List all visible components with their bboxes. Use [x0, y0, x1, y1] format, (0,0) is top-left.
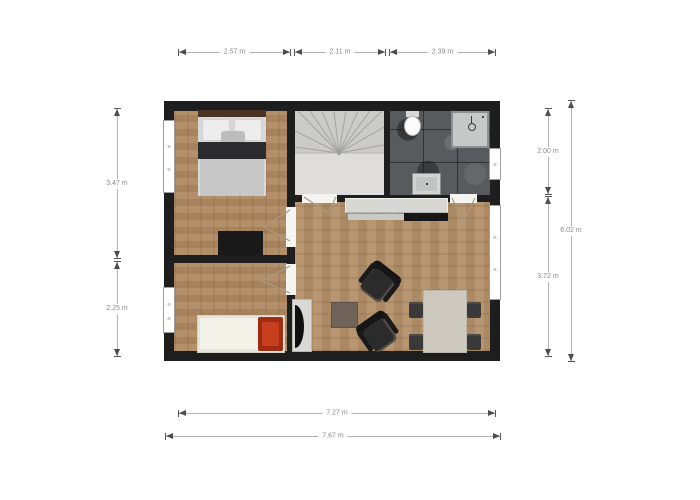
door-opening-bathroom [450, 194, 477, 203]
dining-table [423, 290, 467, 353]
kitchen-counter-dark-module [404, 213, 448, 221]
coffee-table [331, 302, 358, 328]
window-tick [168, 303, 171, 306]
dimension-label: 7.67 m [318, 432, 347, 441]
shower-drain [482, 116, 484, 118]
dining-chair [467, 302, 481, 318]
dimension-label: 2.57 m [220, 48, 249, 57]
red-pillow-center [262, 322, 279, 346]
floor-plan-page: 2.57 m 2.11 m 2.39 m 3.47 m 2.25 m 2.00 … [0, 0, 700, 500]
window-bedroom-top-left [163, 120, 175, 193]
window-tick [168, 317, 171, 320]
door-opening-bedroom-top-left [286, 207, 296, 247]
dining-chair [409, 334, 423, 350]
window-living-room [489, 205, 501, 300]
toilet-bowl [404, 116, 421, 136]
dimension-label: 3.47 m [104, 179, 129, 189]
toilet [404, 111, 421, 137]
window-tick [168, 145, 171, 148]
bathroom-sink [412, 173, 441, 195]
dimension-label: 2.25 m [104, 304, 129, 314]
window-tick [168, 168, 171, 171]
bed-blanket-fold [198, 142, 266, 159]
bed-headboard [198, 110, 266, 117]
single-bed-mattress [200, 318, 258, 349]
dimension-label: 6.02 m [558, 226, 583, 236]
shower [451, 111, 489, 148]
red-pillow [258, 317, 283, 351]
window-tick [494, 236, 497, 239]
window-tick [494, 163, 497, 166]
dimension-label: 2.11 m [326, 48, 355, 57]
single-bed [197, 315, 285, 353]
door-opening-stairs [302, 194, 337, 203]
dimension-label: 2.39 m [428, 48, 457, 57]
door-opening-bedroom-bottom-left [286, 264, 296, 295]
dimension-label: 3.72 m [535, 272, 560, 282]
dresser [218, 231, 263, 255]
double-bed [198, 110, 266, 196]
window-bathroom [489, 148, 501, 180]
bed-duvet [200, 159, 264, 196]
sink-drain [426, 183, 428, 185]
dimension-label: 2.00 m [535, 147, 560, 157]
window-bedroom-bottom-left [163, 287, 175, 333]
window-tick [494, 268, 497, 271]
dining-chair [467, 334, 481, 350]
dining-chair [409, 302, 423, 318]
shower-pipe [471, 116, 472, 124]
kitchen-counter [345, 198, 448, 213]
shower-head-icon [468, 123, 476, 131]
dimension-label: 7.27 m [322, 409, 351, 418]
